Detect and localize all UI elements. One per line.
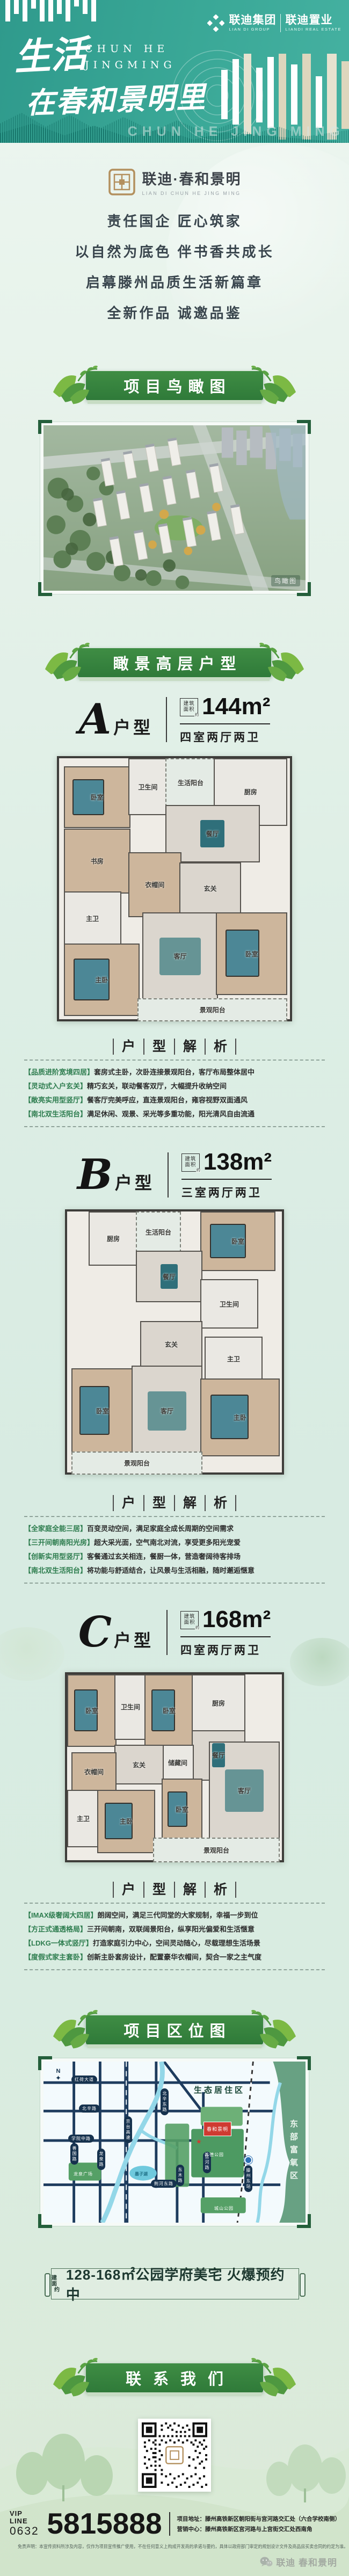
leaf-icon [49, 363, 101, 408]
unit-area: 168m² [202, 1607, 271, 1632]
banner-bar: 联系我们 [86, 2363, 263, 2392]
room: 卧室 [216, 912, 287, 996]
intro-line-4: 全新作品 诚邀品鉴 [0, 302, 349, 322]
analysis-line: 【灵动式入户玄关】精巧玄关，联动餐客双厅，大幅提升收纳空间 [24, 1079, 325, 1093]
unit-a-header: A 户型 建筑 面积 约 144m² 四室两厅两卫 [0, 694, 349, 745]
room: 主卫 [67, 1790, 99, 1848]
sales-center-address: 营销中心：滕州高铁新区宫河路与上宫街交汇处西南角 [177, 2525, 341, 2533]
corner-bracket-icon [38, 582, 52, 596]
room: 客厅 [142, 912, 219, 1000]
road-label: 北辛路 [79, 2105, 100, 2113]
unit-area: 144m² [202, 694, 270, 720]
slogan-prefix: 建面约 [52, 2275, 62, 2293]
station-label: 滕州东站 [244, 2165, 252, 2192]
unit-c-header: C 户型 建筑 面积 约 168m² 四室两厅两卫 [0, 1607, 349, 1658]
brand-name-en: LIAN DI CHUN HE JING MING [142, 191, 242, 196]
analysis-line: 【全家庭全能三居】百变灵动空间，满足家庭全成长周期的空间需求 [24, 1522, 325, 1536]
analysis-title: 户型 解析 [24, 1882, 325, 1898]
slogan-box: 建面约 128-168㎡公园学府美宅 火爆预约中 [51, 2268, 299, 2299]
room: 卧室 [200, 1211, 275, 1271]
banner-label: 项目鸟瞰图 [118, 374, 231, 397]
room: 景观阳台 [153, 1838, 280, 1862]
room: 景观阳台 [137, 998, 287, 1021]
disclaimer: 免责声明：本宣传资料所涉及内容，仅作为项目宣传推广使用，不在任何意义上构成开发商… [18, 2543, 321, 2550]
banner-label: 联系我们 [114, 2367, 235, 2389]
room: 生活阳台 [136, 1211, 181, 1253]
analysis-line: 【IMAX级奢阔大四居】朗阔空间，满足三代同堂的大家规制，幸福一步到位 [24, 1909, 325, 1922]
road-label: 荆河东路 [151, 2180, 177, 2188]
unit-b-analysis: 户型 解析 【全家庭全能三居】百变灵动空间，满足家庭全成长周期的空间需求 【三开… [24, 1495, 325, 1588]
unit-letter: B [77, 1154, 113, 1196]
room: 厨房 [192, 1674, 245, 1732]
room: 景观阳台 [71, 1452, 202, 1475]
room: 卧室 [71, 1368, 134, 1454]
corner-bracket-icon [38, 2056, 52, 2070]
logo-estate-cn: 联迪置业 [285, 14, 341, 26]
room: 玄关 [114, 1745, 164, 1784]
map-label-east-zone: 东部富氧区 [288, 2120, 299, 2184]
dashed-divider [24, 1903, 325, 1904]
corner-bracket-icon [297, 420, 311, 434]
room: 卧室 [162, 1779, 202, 1840]
banner-label: 瞰景高层户型 [107, 651, 242, 674]
park-label: 龙泉广场 [74, 2171, 93, 2177]
dashed-divider [24, 1516, 325, 1517]
section-banner-floorplans: 瞰景高层户型 [41, 640, 308, 685]
project-brand: 联迪·春和景明 LIAN DI CHUN HE JING MING [0, 168, 349, 196]
divider [166, 1610, 168, 1655]
area-label-box: 建筑 面积 约 [180, 1611, 199, 1629]
divider [169, 2512, 170, 2536]
divider [166, 697, 167, 742]
unit-letter: C [78, 1612, 112, 1653]
wechat-qr-code [138, 2419, 211, 2492]
banner-bar: 项目鸟瞰图 [86, 371, 263, 400]
header-watermark: CHUN HE JING MING [128, 124, 345, 140]
phone-number: 5815888 [47, 2509, 162, 2538]
room: 玄关 [140, 1321, 202, 1368]
promo-poster: 联迪集团 LIAN DI GROUP 联迪置业 LIANDI REAL ESTA… [0, 0, 349, 2576]
road-label: 红荷大道 [71, 2076, 97, 2084]
unit-area: 138m² [203, 1149, 272, 1175]
logo-group-en: LIAN DI GROUP [229, 27, 276, 32]
leaf-icon [248, 2355, 300, 2400]
addresses: 项目地址：滕州高铁新区朝阳街与宫河路交汇处（六合学校南侧） 营销中心：滕州高铁新… [177, 2515, 341, 2533]
road-label: 东木路 [176, 2165, 184, 2186]
intro-line-1: 责任国企 匠心筑家 [0, 211, 349, 230]
brand-name-cn: 联迪·春和景明 [142, 168, 242, 188]
intro-line-2: 以自然为底色 伴书香共成长 [0, 241, 349, 261]
logo-group-cn: 联迪集团 [229, 14, 276, 26]
leaf-icon [41, 640, 93, 685]
unit-c-analysis: 户型 解析 【IMAX级奢阔大四居】朗阔空间，满足三代同堂的大家规制，幸福一步到… [24, 1882, 325, 1975]
project-address: 项目地址：滕州高铁新区朝阳街与宫河路交汇处（六合学校南侧） [177, 2515, 341, 2523]
logo-estate-en: LIANDI REAL ESTATE [285, 27, 341, 32]
liandi-logo-icon [207, 14, 224, 32]
floorplan-a: 卧室 卫生间 生活阳台 厨房 餐厅 书房 衣帽间 玄关 主卫 主卧 客厅 卧室 … [57, 756, 292, 1021]
unit-suffix: 户型 [113, 714, 153, 739]
room: 主卧 [200, 1378, 280, 1456]
project-marker: 春和景明 [203, 2122, 231, 2136]
hero-subtitle-line1: CHUN HE [85, 41, 176, 57]
unit-a-analysis: 户型 解析 【品质进阶宽境四居】套房式主卧，次卧连接景观阳台，客厅布局整体居中 … [24, 1039, 325, 1132]
dashed-divider [24, 1583, 325, 1584]
header: 联迪集团 LIAN DI GROUP 联迪置业 LIANDI REAL ESTA… [0, 0, 349, 143]
map-label-lake: 墨子湖 [135, 2171, 148, 2177]
unit-rooms: 三室两厅两卫 [181, 1179, 272, 1200]
leaf-icon [49, 2355, 101, 2400]
room: 书房 [64, 829, 130, 894]
analysis-line: 【三开间朝南阳光房】超大采光面，空气南北对流，享受更多阳光宠爱 [24, 1536, 325, 1550]
park-label: 养德公园 [205, 2152, 224, 2158]
aerial-image-frame: 鸟瞰图 [40, 422, 309, 594]
aerial-watermark: 鸟瞰图 [271, 575, 300, 586]
banner-bar: 瞰景高层户型 [78, 648, 271, 677]
room: 卫生间 [128, 758, 168, 815]
corner-bracket-icon [38, 420, 52, 434]
compass: N✦ [55, 2068, 61, 2082]
slogan-text: 128-168㎡公园学府美宅 火爆预约中 [66, 2264, 299, 2304]
leaf-icon [49, 2007, 101, 2052]
location-map: N✦ 生态居住区 东部富氧区 春和景明 ★ 滕州东站 墨子湖 红荷大道 北辛路 … [43, 2062, 306, 2223]
hero-title-line1: 生活 [13, 24, 89, 81]
floorplan-b: 厨房 生活阳台 卧室 餐厅 卫生间 玄关 主卫 卧室 客厅 主卧 景观阳台 [65, 1209, 284, 1475]
room: 餐厅 [136, 1251, 202, 1302]
analysis-line: 【敞亮实用型竖厅】餐客厅完美呼应，直连景观阳台，雍容视野双面通风 [24, 1093, 325, 1107]
unit-suffix: 户型 [114, 1627, 154, 1652]
wechat-brand-mark: 联迪 春和景明 [260, 2555, 337, 2568]
road-label: 学院中路 [68, 2135, 94, 2143]
leaf-icon [248, 363, 300, 408]
unit-suffix: 户型 [115, 1170, 155, 1194]
room: 卫生间 [114, 1674, 147, 1740]
intro-line-3: 启幕滕州品质生活新篇章 [0, 272, 349, 292]
unit-rooms: 四室两厅两卫 [180, 723, 270, 745]
brand-seal-icon [108, 168, 136, 196]
analysis-line: 【度假式家主套卧】创新主卧套房设计，配置豪华衣帽间，契合一家之主气度 [24, 1950, 325, 1964]
wechat-icon [260, 2557, 273, 2567]
room: 主卫 [205, 1337, 263, 1381]
contact-row: VIP LINE 0632 5815888 项目地址：滕州高铁新区朝阳街与宫河路… [10, 2509, 340, 2538]
leaf-icon [256, 640, 308, 685]
banner-bar: 项目区位图 [86, 2015, 263, 2044]
road-label: 北辛东路 [161, 2088, 169, 2115]
room: 卫生间 [200, 1279, 258, 1328]
star-icon: ★ [196, 2138, 202, 2145]
road-label: 龙泉路 [97, 2149, 105, 2170]
section-banner-contact: 联系我们 [49, 2355, 300, 2400]
analysis-line: 【南北双生活阳台】将功能与舒适结合，让风景与生活相融，随时邂逅惬意 [24, 1564, 325, 1578]
analysis-line: 【品质进阶宽境四居】套房式主卧，次卧连接景观阳台，客厅布局整体居中 [24, 1065, 325, 1079]
analysis-line: 【LDKG一体式竖厅】打造家庭引力中心，空间灵动随心，尽载理想生活场景 [24, 1936, 325, 1950]
unit-b-header: B 户型 建筑 面积 约 138m² 三室两厅两卫 [0, 1149, 349, 1200]
corner-bracket-icon [297, 2056, 311, 2070]
leaf-icon [248, 2007, 300, 2052]
hero-subtitle-line2: JINGMING [85, 57, 176, 73]
metro-icon [244, 2156, 252, 2164]
banner-label: 项目区位图 [118, 2019, 231, 2041]
corner-bracket-icon [297, 2214, 311, 2228]
hero-subtitle: CHUN HE JINGMING [85, 41, 176, 74]
unit-rooms: 四室两厅两卫 [180, 1636, 271, 1658]
room: 生活阳台 [165, 758, 216, 807]
analysis-line: 【南北双生活阳台】满足休闲、观景、采光等多重功能，阳光清风自由流通 [24, 1107, 325, 1121]
room: 主卫 [64, 891, 121, 946]
room: 客厅 [132, 1366, 202, 1456]
room: 衣帽间 [128, 852, 181, 917]
map-label-eco-zone: 生态居住区 [194, 2084, 245, 2095]
dashed-divider [24, 1969, 325, 1970]
end-cap-icon [45, 2273, 50, 2297]
corner-bracket-icon [297, 582, 311, 596]
aerial-render: 鸟瞰图 [43, 425, 306, 591]
room: 厨房 [89, 1211, 138, 1266]
room: 主卧 [97, 1790, 155, 1853]
section-banner-aerial: 项目鸟瞰图 [49, 363, 300, 408]
corner-bracket-icon [38, 2214, 52, 2228]
room: 卧室 [64, 766, 130, 829]
unit-letter: A [79, 699, 112, 741]
logo-divider [280, 14, 281, 32]
floorplan-c: 卧室 卫生间 卧室 厨房 餐厅 储藏间 玄关 衣帽间 主卫 主卧 卧室 客厅 景… [65, 1672, 284, 1862]
divider [168, 1152, 169, 1198]
room: 储藏间 [162, 1745, 194, 1780]
park-label: 城山公园 [214, 2205, 234, 2211]
room: 卧室 [67, 1674, 117, 1747]
analysis-title: 户型 解析 [24, 1039, 325, 1055]
room: 主卧 [64, 944, 140, 1016]
area-label-box: 建筑 面积 约 [180, 698, 198, 716]
corporate-logo: 联迪集团 LIAN DI GROUP 联迪置业 LIANDI REAL ESTA… [207, 14, 341, 32]
room: 卧室 [144, 1674, 194, 1747]
vip-line: VIP LINE 0632 [10, 2510, 42, 2538]
room: 衣帽间 [71, 1752, 117, 1791]
area-label-box: 建筑 面积 约 [181, 1153, 200, 1172]
station-marker: 滕州东站 [244, 2156, 252, 2192]
end-cap-icon [300, 2273, 306, 2297]
dashed-divider [24, 1126, 325, 1127]
room: 玄关 [179, 862, 242, 914]
dashed-divider [24, 1060, 325, 1061]
road-label: 京台高速 [124, 2116, 132, 2143]
section-banner-location: 项目区位图 [49, 2007, 300, 2052]
analysis-title: 户型 解析 [24, 1495, 325, 1511]
road-label: 善国路 [70, 2143, 78, 2165]
compass-icon: ✦ [55, 2074, 61, 2082]
location-map-frame: N✦ 生态居住区 东部富氧区 春和景明 ★ 滕州东站 墨子湖 红荷大道 北辛路 … [40, 2058, 309, 2226]
barcode-decoration [5, 0, 96, 21]
analysis-line: 【方正式通透格局】三开间朝南，双联阔景阳台，纵享阳光偏爱和生活惬意 [24, 1922, 325, 1936]
analysis-line: 【创新实用型竖厅】客餐通过玄关相连，餐厨一体，营造奢阔待客排场 [24, 1550, 325, 1564]
